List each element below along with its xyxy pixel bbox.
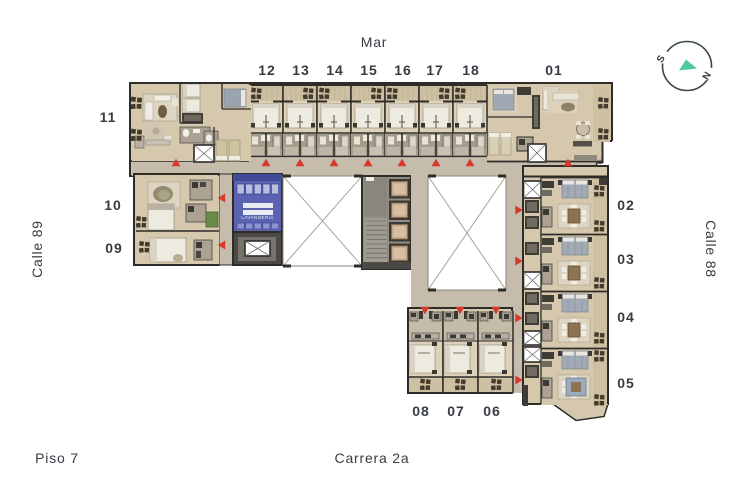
svg-text:LAVANDERIA: LAVANDERIA <box>241 215 274 220</box>
svg-text:01: 01 <box>545 62 563 78</box>
svg-text:16: 16 <box>394 62 412 78</box>
svg-text:Mar: Mar <box>361 34 388 50</box>
svg-text:18: 18 <box>462 62 480 78</box>
svg-text:05: 05 <box>617 375 635 391</box>
svg-text:Piso 7: Piso 7 <box>35 450 79 466</box>
svg-text:14: 14 <box>326 62 344 78</box>
svg-text:Calle 89: Calle 89 <box>29 220 45 278</box>
svg-text:09: 09 <box>105 240 123 256</box>
svg-text:11: 11 <box>100 109 117 125</box>
svg-text:15: 15 <box>360 62 378 78</box>
svg-text:04: 04 <box>617 309 635 325</box>
svg-text:06: 06 <box>483 403 501 419</box>
svg-text:08: 08 <box>412 403 430 419</box>
svg-text:Calle 88: Calle 88 <box>703 220 719 278</box>
svg-text:Carrera 2a: Carrera 2a <box>335 450 410 466</box>
svg-text:12: 12 <box>258 62 276 78</box>
svg-text:10: 10 <box>104 197 122 213</box>
svg-text:07: 07 <box>447 403 465 419</box>
svg-text:13: 13 <box>292 62 310 78</box>
svg-text:03: 03 <box>617 251 635 267</box>
svg-text:17: 17 <box>426 62 444 78</box>
svg-text:02: 02 <box>617 197 635 213</box>
